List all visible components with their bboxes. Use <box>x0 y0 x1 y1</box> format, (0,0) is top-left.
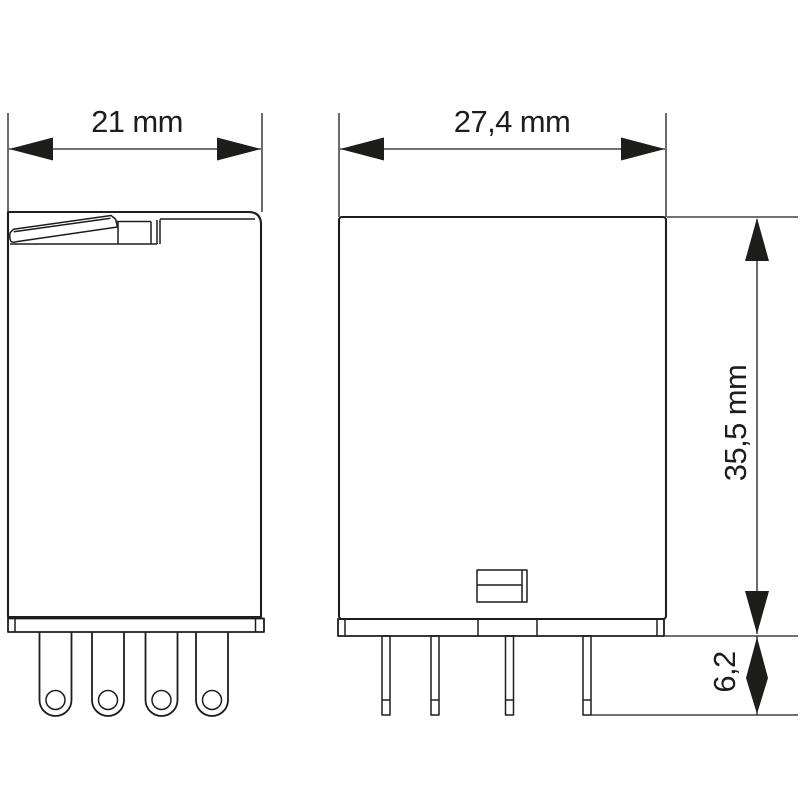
front-view <box>338 217 666 715</box>
dim-pin-length-label: 6,2 <box>707 651 742 692</box>
side-pin-3 <box>146 632 178 716</box>
label-clip-inner-lines <box>477 570 522 602</box>
side-base-plate <box>8 619 264 633</box>
side-pin-2 <box>92 632 124 716</box>
dim-front-width-arrow-left <box>340 138 384 161</box>
dim-pin-length-arrow-top <box>746 637 768 678</box>
latch-recess-right-wall <box>157 220 160 245</box>
dim-pin-length-arrow-bottom <box>746 678 768 714</box>
latch-slider-block <box>116 222 151 245</box>
front-base-plate <box>338 619 664 636</box>
front-base-plate-ticks <box>345 619 657 636</box>
side-pin-2-hole <box>99 691 118 710</box>
label-clip-detail <box>477 570 527 602</box>
side-base-plate-ticks <box>15 619 256 633</box>
dim-pin-length: 6,2 <box>591 636 798 715</box>
front-pins <box>382 636 591 715</box>
side-pin-1 <box>40 632 72 716</box>
dim-height: 35,5 mm <box>667 217 798 634</box>
front-base-plate-outline <box>338 619 664 636</box>
front-pin-1 <box>382 636 390 715</box>
side-base-plate-outline <box>8 619 264 633</box>
side-body-outline <box>8 212 261 617</box>
relay-dimension-drawing: 21 mm 27,4 mm 35,5 mm 6,2 <box>0 0 800 800</box>
dim-height-arrow-bottom <box>745 591 769 634</box>
dim-side-width-arrow-right <box>217 138 261 161</box>
label-clip-outline <box>477 570 527 602</box>
dim-front-width-label: 27,4 mm <box>454 104 570 139</box>
dim-side-width-label: 21 mm <box>91 104 183 139</box>
side-pins <box>40 632 229 716</box>
front-pin-3 <box>506 636 514 715</box>
side-pin-3-hole <box>152 691 171 710</box>
dim-front-width: 27,4 mm <box>339 104 666 217</box>
dim-height-label: 35,5 mm <box>718 365 753 481</box>
side-pin-4 <box>196 632 228 716</box>
dimensions: 21 mm 27,4 mm 35,5 mm 6,2 <box>8 104 798 715</box>
latch-lever-detail <box>10 216 160 245</box>
dim-height-arrow-top <box>745 218 769 261</box>
dim-front-width-arrow-right <box>621 138 665 161</box>
dim-side-width: 21 mm <box>8 104 262 212</box>
front-pin-2 <box>431 636 439 715</box>
side-pin-1-hole <box>46 691 65 710</box>
front-pin-4 <box>583 636 591 715</box>
dim-side-width-arrow-left <box>9 138 53 161</box>
front-body-outline <box>339 217 666 619</box>
side-view <box>8 212 264 716</box>
side-pin-4-hole <box>203 691 222 710</box>
